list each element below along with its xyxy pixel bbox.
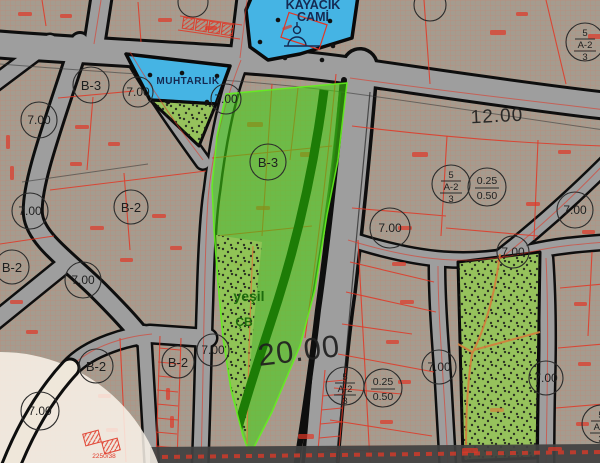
svg-text:3: 3 [342,396,347,407]
green-area-label: yeşil [233,288,264,304]
svg-text:0.25: 0.25 [373,376,394,388]
svg-text:A-2: A-2 [338,384,353,395]
road-width-12: 12.00 [470,105,524,129]
svg-text:B-2: B-2 [86,359,106,374]
parcel-number: 2250/38 [92,453,116,460]
svg-text:7.00: 7.00 [27,113,51,127]
svg-text:7.00: 7.00 [427,360,451,374]
svg-text:7.00: 7.00 [534,371,558,385]
svg-text:B-3: B-3 [81,78,101,93]
svg-text:0.50: 0.50 [373,391,394,403]
svg-text:7.00: 7.00 [378,221,402,235]
svg-text:0.50: 0.50 [477,190,498,202]
svg-text:7.00: 7.00 [214,92,238,106]
svg-text:5: 5 [342,372,347,383]
svg-text:B-3: B-3 [258,155,278,170]
svg-text:A-2: A-2 [444,182,459,193]
zoning-map-canvas[interactable]: 7.00 7.00 7.00 7.00 7.00 7.00 7.00 7.00 … [0,0,600,463]
svg-text:A-2: A-2 [578,40,593,51]
svg-text:B-2: B-2 [168,355,188,370]
svg-text:5: 5 [582,28,587,39]
mosque-name-line2: CAMİ [297,9,329,24]
svg-text:7.00: 7.00 [28,404,52,418]
svg-text:7.00: 7.00 [71,273,95,287]
svg-text:7.00: 7.00 [126,85,150,99]
svg-text:3: 3 [448,194,453,205]
svg-text:3: 3 [582,52,587,63]
svg-text:B-2: B-2 [2,260,22,275]
svg-text:A-2: A-2 [594,422,600,433]
svg-text:7.00: 7.00 [18,204,42,218]
park-parcel-east [458,252,540,461]
svg-text:5: 5 [448,170,453,181]
svg-text:7.00: 7.00 [563,203,587,217]
muhtarlik-name: MUHTARLIK [156,76,219,87]
svg-text:7.00: 7.00 [201,343,225,357]
svg-text:0.25: 0.25 [477,175,498,187]
svg-text:B-2: B-2 [121,200,141,215]
green-area-code: ÇB [235,315,253,329]
zoning-map: 7.00 7.00 7.00 7.00 7.00 7.00 7.00 7.00 … [0,0,600,463]
svg-text:7.00: 7.00 [501,245,525,259]
